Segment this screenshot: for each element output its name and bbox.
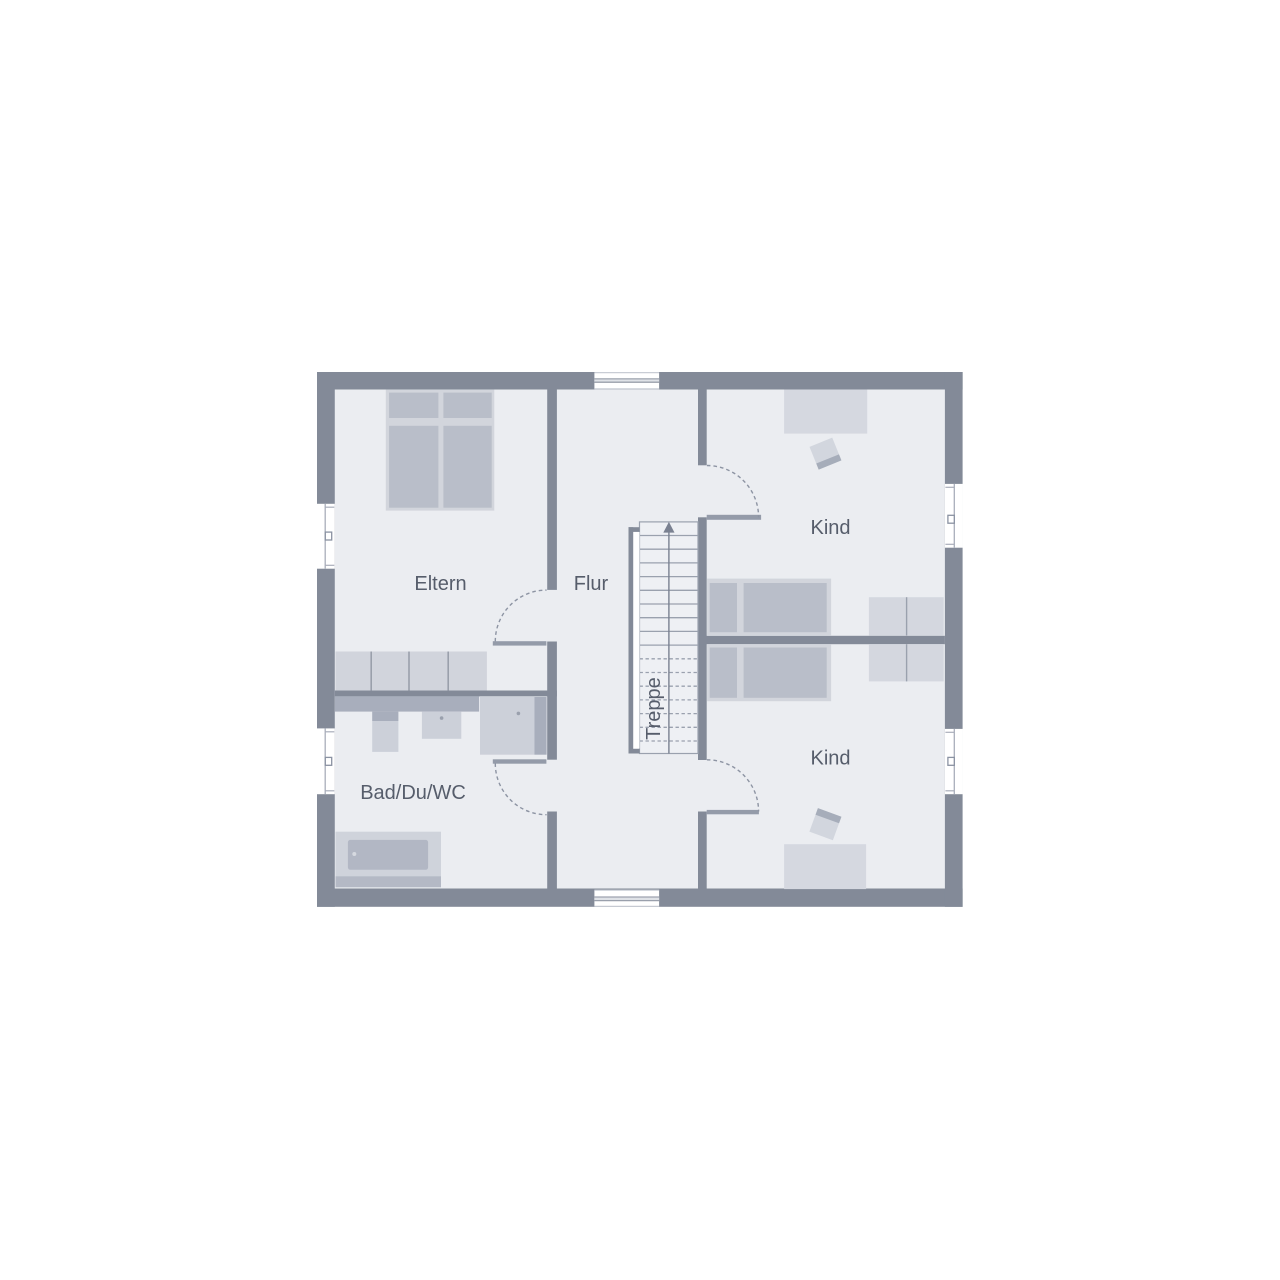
svg-text:Treppe: Treppe <box>643 677 665 740</box>
svg-text:Flur: Flur <box>574 573 609 595</box>
svg-text:Bad/Du/WC: Bad/Du/WC <box>360 782 466 804</box>
svg-text:Eltern: Eltern <box>414 573 466 595</box>
svg-text:Kind: Kind <box>810 747 850 769</box>
svg-text:Kind: Kind <box>810 517 850 539</box>
